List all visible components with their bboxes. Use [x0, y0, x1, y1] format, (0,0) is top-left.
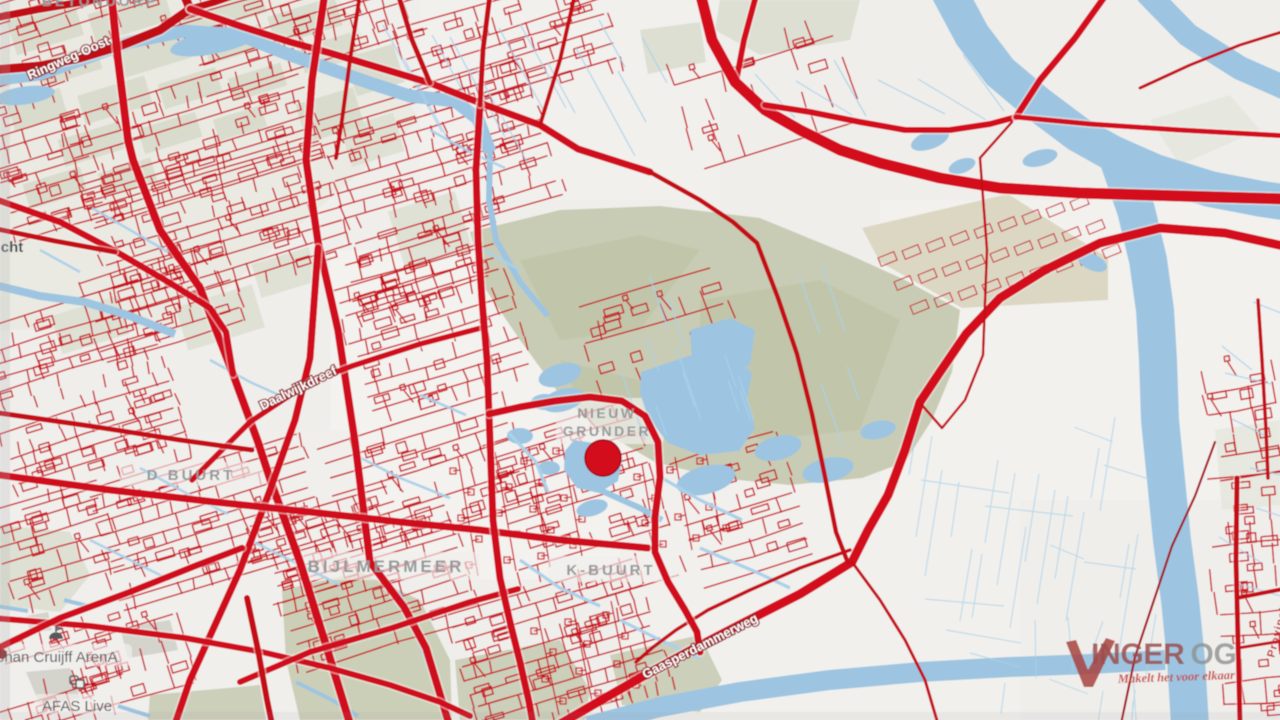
svg-text:NIEUW: NIEUW — [577, 405, 636, 421]
svg-text:BIJLMERMEER: BIJLMERMEER — [308, 557, 465, 576]
svg-text:D BUURT: D BUURT — [147, 467, 236, 484]
svg-text:K-BUURT: K-BUURT — [566, 562, 655, 579]
svg-text:INGEROG: INGEROG — [1091, 638, 1237, 671]
svg-text:BETONDORP: BETONDORP — [42, 0, 158, 9]
svg-text:GRUNDER: GRUNDER — [563, 423, 651, 439]
svg-text:ohan Cruijff ArenA: ohan Cruijff ArenA — [0, 649, 117, 666]
